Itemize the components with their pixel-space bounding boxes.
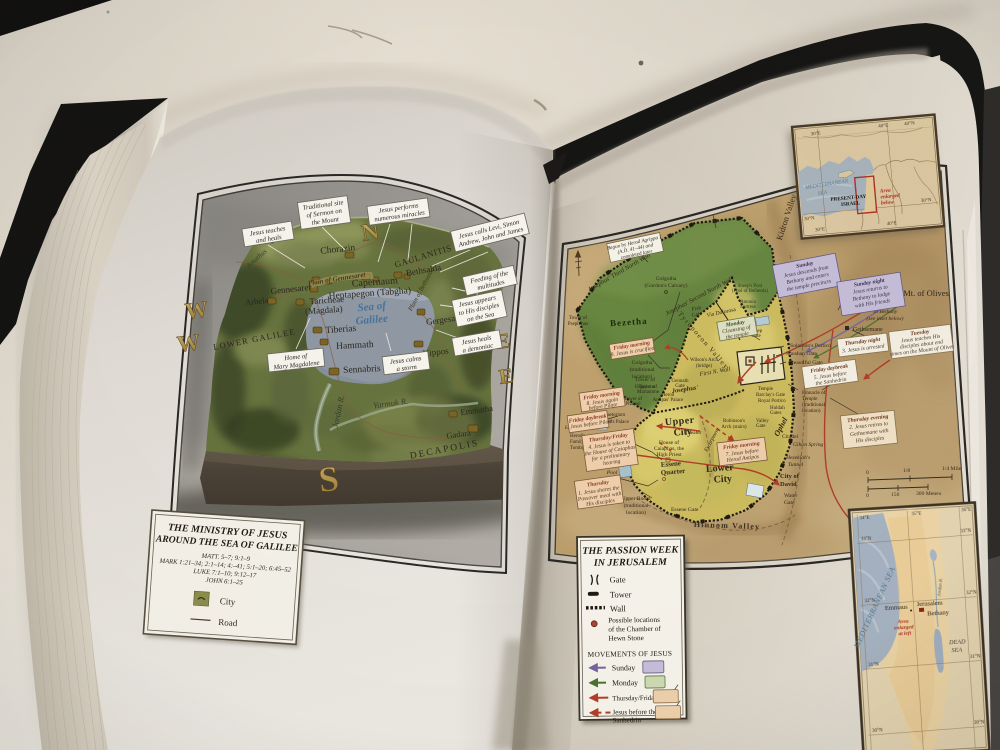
svg-text:32°N: 32°N (864, 599, 875, 605)
svg-text:Water: Water (784, 493, 797, 499)
svg-text:30°N: 30°N (974, 720, 985, 726)
svg-text:below: below (881, 199, 895, 206)
svg-text:Arch (stairs): Arch (stairs) (721, 425, 746, 430)
svg-text:34°E: 34°E (859, 516, 869, 522)
svg-text:W: W (184, 296, 210, 324)
svg-text:Tower: Tower (610, 589, 632, 599)
svg-text:Tunnel: Tunnel (788, 462, 804, 468)
svg-text:(traditional: (traditional (802, 401, 826, 408)
svg-text:Possible locations: Possible locations (608, 616, 660, 625)
svg-text:House of: House of (659, 439, 679, 446)
svg-text:1/8: 1/8 (903, 468, 910, 474)
svg-text:Essene Gate: Essene Gate (671, 507, 699, 513)
svg-text:at left: at left (898, 631, 912, 638)
svg-text:(Pool of Bethesda): (Pool of Bethesda) (732, 289, 768, 294)
svg-text:THE PASSION WEEK: THE PASSION WEEK (582, 545, 679, 557)
svg-text:Emmaus: Emmaus (885, 604, 909, 612)
svg-text:Psephinus: Psephinus (568, 322, 588, 327)
svg-text:0: 0 (866, 493, 869, 499)
svg-text:36°E: 36°E (961, 508, 971, 514)
svg-text:Temple: Temple (758, 387, 774, 392)
svg-text:Solomon's Portico: Solomon's Portico (790, 343, 831, 349)
svg-text:30°E: 30°E (811, 132, 821, 138)
svg-text:David: David (780, 481, 797, 488)
svg-text:Thursday/Friday: Thursday/Friday (612, 695, 658, 703)
svg-text:Shushan Gate: Shushan Gate (786, 351, 817, 357)
svg-text:1/4 Mile: 1/4 Mile (942, 466, 962, 472)
svg-text:Robinson's: Robinson's (723, 419, 745, 424)
svg-text:(see inset below): (see inset below) (867, 315, 904, 322)
svg-text:40°E: 40°E (887, 221, 897, 227)
svg-text:Citadel: Citadel (782, 434, 799, 440)
svg-text:Phasael: Phasael (625, 402, 641, 407)
svg-text:Antipas' Palace: Antipas' Palace (653, 398, 685, 403)
svg-text:32°N: 32°N (966, 591, 977, 597)
svg-text:location): location) (802, 407, 821, 414)
svg-text:MOVEMENTS OF JESUS: MOVEMENTS OF JESUS (588, 649, 673, 659)
svg-text:DEAD: DEAD (948, 638, 966, 646)
svg-text:40°N: 40°N (904, 121, 915, 127)
svg-text:33°N: 33°N (960, 529, 971, 535)
svg-text:City: City (673, 426, 692, 439)
svg-text:0: 0 (866, 470, 869, 476)
svg-text:Barclay's Gate: Barclay's Gate (756, 393, 786, 398)
svg-text:City of: City of (780, 473, 800, 480)
svg-text:City: City (713, 473, 732, 485)
svg-text:Bethany: Bethany (927, 609, 950, 617)
svg-text:Gate: Gate (610, 574, 626, 584)
svg-text:33°N: 33°N (861, 537, 872, 543)
svg-text:30°E: 30°E (815, 228, 825, 234)
svg-text:Sennabris: Sennabris (343, 364, 381, 376)
svg-text:Gethsemane: Gethsemane (853, 327, 883, 333)
svg-text:Sunday: Sunday (612, 663, 636, 672)
svg-text:31°N: 31°N (970, 654, 981, 660)
svg-text:City: City (219, 596, 236, 607)
svg-text:Golgotha: Golgotha (632, 360, 653, 366)
svg-text:Royal Portico: Royal Portico (758, 399, 786, 404)
svg-text:(traditional: (traditional (624, 502, 649, 509)
svg-text:31°N: 31°N (868, 662, 879, 668)
svg-text:Gate: Gate (784, 500, 795, 506)
svg-text:Mariamme: Mariamme (637, 390, 660, 395)
svg-text:Mt. of Olives: Mt. of Olives (903, 288, 949, 298)
svg-text:SEA: SEA (951, 647, 962, 655)
svg-text:30°N: 30°N (872, 728, 883, 734)
svg-text:35°E: 35°E (911, 512, 921, 518)
svg-text:Sanhedrin: Sanhedrin (613, 716, 642, 724)
svg-text:(traditional: (traditional (630, 366, 655, 373)
svg-text:High Priest: High Priest (656, 452, 682, 458)
svg-text:S: S (317, 458, 341, 500)
svg-text:Hezekiah's: Hezekiah's (785, 455, 810, 461)
svg-text:W: W (176, 329, 202, 357)
svg-text:(bridge): (bridge) (696, 364, 712, 369)
svg-text:Gihon Spring: Gihon Spring (793, 442, 824, 448)
svg-text:30°N: 30°N (804, 216, 815, 222)
svg-text:Wilson's Arch: Wilson's Arch (690, 358, 719, 363)
svg-text:Tower of: Tower of (635, 376, 655, 383)
svg-text:150: 150 (891, 492, 900, 498)
svg-text:Tower of: Tower of (569, 316, 587, 321)
svg-text:Golgotha: Golgotha (656, 276, 677, 282)
svg-text:Hewn Stone: Hewn Stone (608, 634, 643, 642)
svg-text:40°E: 40°E (878, 124, 888, 130)
svg-text:Gates: Gates (770, 411, 781, 416)
svg-text:Gate: Gate (756, 424, 766, 429)
svg-text:30°N: 30°N (921, 198, 932, 204)
svg-text:Road: Road (218, 617, 238, 628)
svg-text:Wall: Wall (610, 603, 627, 613)
svg-text:location): location) (626, 509, 646, 516)
svg-text:(Gordon's Calvary): (Gordon's Calvary) (644, 282, 687, 289)
svg-text:Monday: Monday (612, 678, 638, 687)
svg-text:of the Chamber of: of the Chamber of (608, 625, 661, 634)
svg-text:Upper Room: Upper Room (621, 496, 651, 502)
svg-text:IN JERUSALEM: IN JERUSALEM (593, 557, 668, 569)
svg-text:300 Meters: 300 Meters (916, 491, 941, 497)
svg-text:Hammath: Hammath (336, 340, 374, 352)
svg-text:Fortress: Fortress (740, 305, 756, 310)
